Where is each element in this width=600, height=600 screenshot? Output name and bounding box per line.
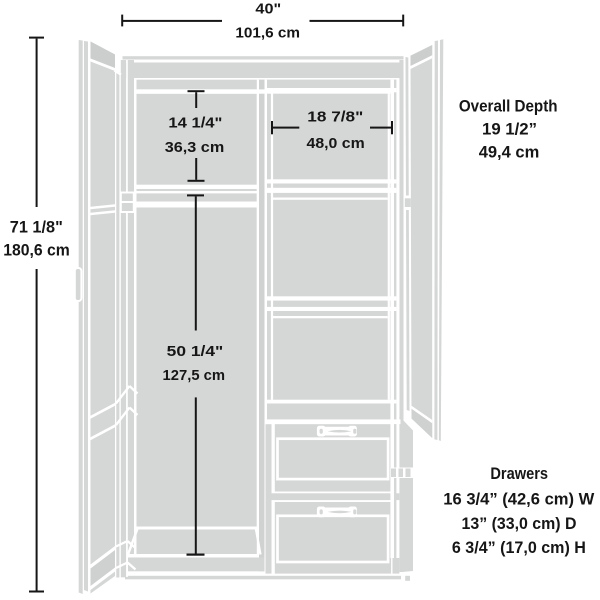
svg-text:18 7/8": 18 7/8"	[307, 109, 363, 126]
svg-text:Drawers: Drawers	[490, 464, 548, 483]
svg-text:14 1/4": 14 1/4"	[168, 115, 222, 132]
svg-text:6 3/4” (17,0 cm) H: 6 3/4” (17,0 cm) H	[452, 538, 586, 557]
svg-text:19 1/2”: 19 1/2”	[482, 119, 537, 138]
svg-text:49,4 cm: 49,4 cm	[479, 142, 540, 161]
svg-text:71 1/8": 71 1/8"	[10, 218, 63, 237]
svg-text:16 3/4” (42,6 cm) W: 16 3/4” (42,6 cm) W	[443, 490, 595, 509]
svg-text:50 1/4": 50 1/4"	[167, 343, 224, 360]
svg-text:Overall Depth: Overall Depth	[459, 96, 558, 115]
svg-text:40": 40"	[255, 0, 281, 17]
svg-text:48,0 cm: 48,0 cm	[307, 135, 365, 152]
svg-text:127,5 cm: 127,5 cm	[163, 367, 226, 384]
svg-text:101,6 cm: 101,6 cm	[235, 24, 300, 41]
svg-text:180,6 cm: 180,6 cm	[3, 240, 70, 259]
svg-text:13” (33,0 cm) D: 13” (33,0 cm) D	[462, 514, 577, 533]
svg-text:36,3 cm: 36,3 cm	[165, 139, 225, 156]
